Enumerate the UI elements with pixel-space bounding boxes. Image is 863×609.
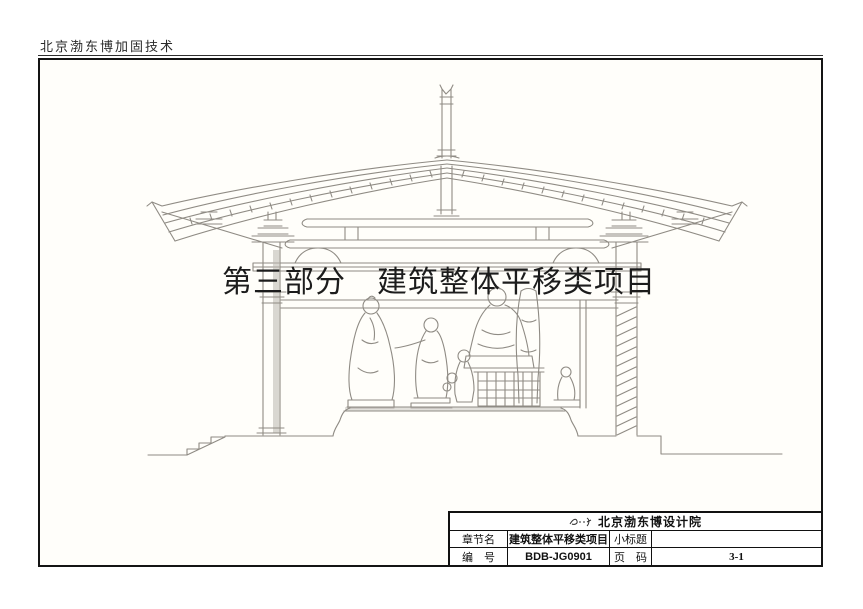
title-block: 北京渤东博设计院 章节名 建筑整体平移类项目 小标题 编 号 BDB-JG090… (448, 511, 821, 565)
drawing-frame: 第三部分 建筑整体平移类项目 北京渤东博设计院 章节名 建筑整体平移类项目 小标… (38, 58, 823, 567)
subtitle-label: 小标题 (610, 531, 652, 548)
subtitle-value (652, 531, 821, 548)
page-label: 页 码 (610, 548, 652, 565)
company-logo-icon (569, 516, 593, 527)
document-page: 北京渤东博加固技术 (0, 0, 863, 609)
chapter-value: 建筑整体平移类项目 (508, 531, 610, 548)
header-rule (38, 55, 823, 56)
temple-section-drawing (40, 60, 821, 565)
number-label: 编 号 (450, 548, 508, 565)
page-number: 3-1 (652, 548, 821, 565)
section-title: 第三部分 建筑整体平移类项目 (222, 257, 656, 301)
document-number: BDB-JG0901 (508, 548, 610, 565)
chapter-label: 章节名 (450, 531, 508, 548)
company-name: 北京渤东博设计院 (598, 513, 702, 530)
company-header: 北京渤东博加固技术 (40, 36, 175, 55)
title-block-company-cell: 北京渤东博设计院 (450, 513, 821, 531)
